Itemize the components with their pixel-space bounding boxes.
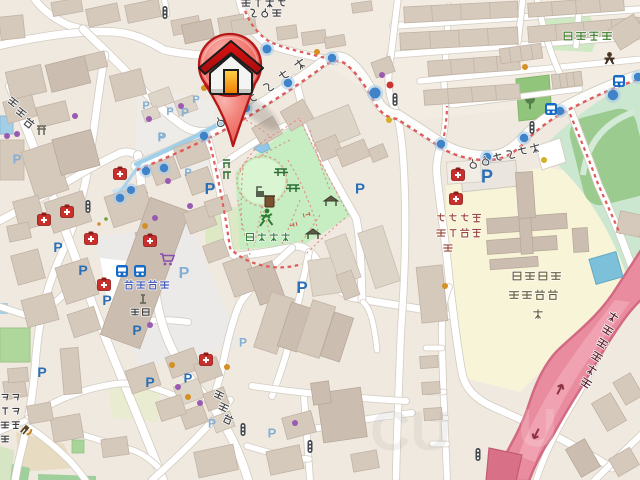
svg-text:P: P (192, 94, 199, 106)
svg-text:P: P (53, 239, 62, 255)
svg-text:P: P (145, 374, 154, 390)
svg-text:P: P (481, 166, 493, 186)
svg-text:P: P (179, 265, 190, 282)
svg-text:P: P (355, 180, 365, 197)
svg-text:P: P (78, 262, 87, 278)
svg-text:CU: CU (370, 399, 451, 462)
svg-text:P: P (13, 152, 22, 167)
svg-text:P: P (208, 416, 216, 430)
svg-text:P: P (102, 292, 111, 308)
svg-text:P: P (142, 100, 149, 112)
svg-text:P: P (268, 426, 277, 441)
svg-text:P: P (296, 278, 307, 297)
svg-text:P: P (132, 322, 141, 338)
svg-text:U: U (518, 398, 557, 458)
svg-text:P: P (184, 371, 193, 386)
svg-text:P: P (37, 364, 46, 380)
svg-text:P: P (166, 106, 173, 118)
svg-text:P: P (205, 181, 216, 198)
svg-text:P: P (184, 167, 191, 179)
svg-text:P: P (239, 335, 247, 349)
svg-text:P: P (158, 132, 165, 143)
